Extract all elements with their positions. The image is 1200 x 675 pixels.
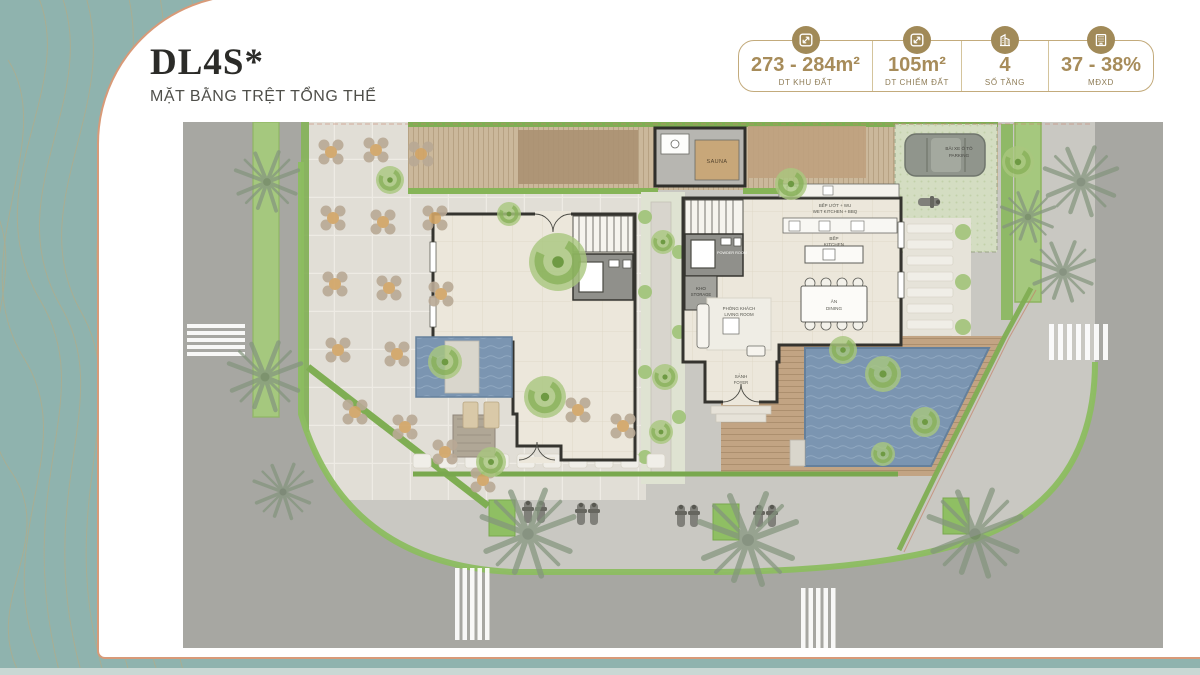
pergola — [518, 130, 638, 184]
hedge — [408, 188, 658, 194]
floors-icon — [991, 26, 1019, 54]
bottom-edge-strip — [0, 668, 1200, 675]
page-title: DL4S* — [150, 44, 376, 83]
living-room: PHÒNG KHÁCH LIVING ROOM — [697, 298, 771, 356]
area-icon — [903, 26, 931, 54]
dining-set: ĂN DINING — [801, 278, 867, 330]
parking-label: PARKING — [949, 153, 970, 158]
stat-value: 273 - 284m² — [751, 55, 860, 75]
density-icon — [1087, 26, 1115, 54]
room-label: SẢNH — [735, 373, 748, 379]
stat-label: DT KHU ĐẤT — [779, 78, 833, 87]
car-top-view — [905, 134, 985, 176]
room-label: DINING — [826, 306, 843, 311]
stats-bar: 273 - 284m² DT KHU ĐẤT 105m² DT CHIẾM ĐẤ… — [738, 40, 1154, 92]
lounger — [484, 402, 499, 428]
room-label: WET KITCHEN + BBQ — [813, 209, 858, 214]
side-garden-path — [903, 218, 971, 354]
room-label: KITCHEN — [824, 242, 844, 247]
room-label: LIVING ROOM — [724, 312, 754, 317]
page-subtitle: MẶT BẰNG TRỆT TỔNG THỂ — [150, 88, 376, 106]
stat-footprint-area: 105m² DT CHIẾM ĐẤT — [872, 41, 961, 91]
stat-value: 4 — [999, 55, 1010, 75]
stat-floors: 4 SỐ TẦNG — [961, 41, 1048, 91]
sauna-room: SAUNA — [655, 128, 745, 186]
area-icon — [792, 26, 820, 54]
stat-value: 105m² — [888, 55, 946, 75]
stat-label: DT CHIẾM ĐẤT — [885, 78, 949, 87]
stat-label: MĐXD — [1088, 78, 1114, 87]
room-label: BẾP — [829, 235, 838, 241]
stat-value: 37 - 38% — [1061, 55, 1141, 75]
stat-land-area: 273 - 284m² DT KHU ĐẤT — [739, 41, 872, 91]
site-plan-container: SAUNA BÃI XE Ô TÔ PARKING — [183, 122, 1163, 648]
room-label: KHO — [696, 286, 706, 291]
room-label: STORAGE — [691, 292, 712, 297]
site-plan: SAUNA BÃI XE Ô TÔ PARKING — [183, 122, 1163, 648]
title-block: DL4S* MẶT BẰNG TRỆT TỔNG THỂ — [150, 44, 376, 106]
pergola — [748, 126, 866, 178]
parking-label: BÃI XE Ô TÔ — [945, 145, 973, 151]
lounger — [463, 402, 478, 428]
room-label: PHÒNG KHÁCH — [723, 306, 756, 311]
stat-label: SỐ TẦNG — [985, 78, 1025, 87]
room-label: BẾP ƯỚT + WU — [819, 203, 851, 208]
room-label: ĂN — [831, 298, 837, 304]
stat-density: 37 - 38% MĐXD — [1048, 41, 1153, 91]
room-label: POWDER ROOM — [717, 251, 747, 255]
room-label: SAUNA — [707, 159, 728, 165]
brochure-page: { "page": { "title": "DL4S*", "subtitle"… — [0, 0, 1200, 675]
